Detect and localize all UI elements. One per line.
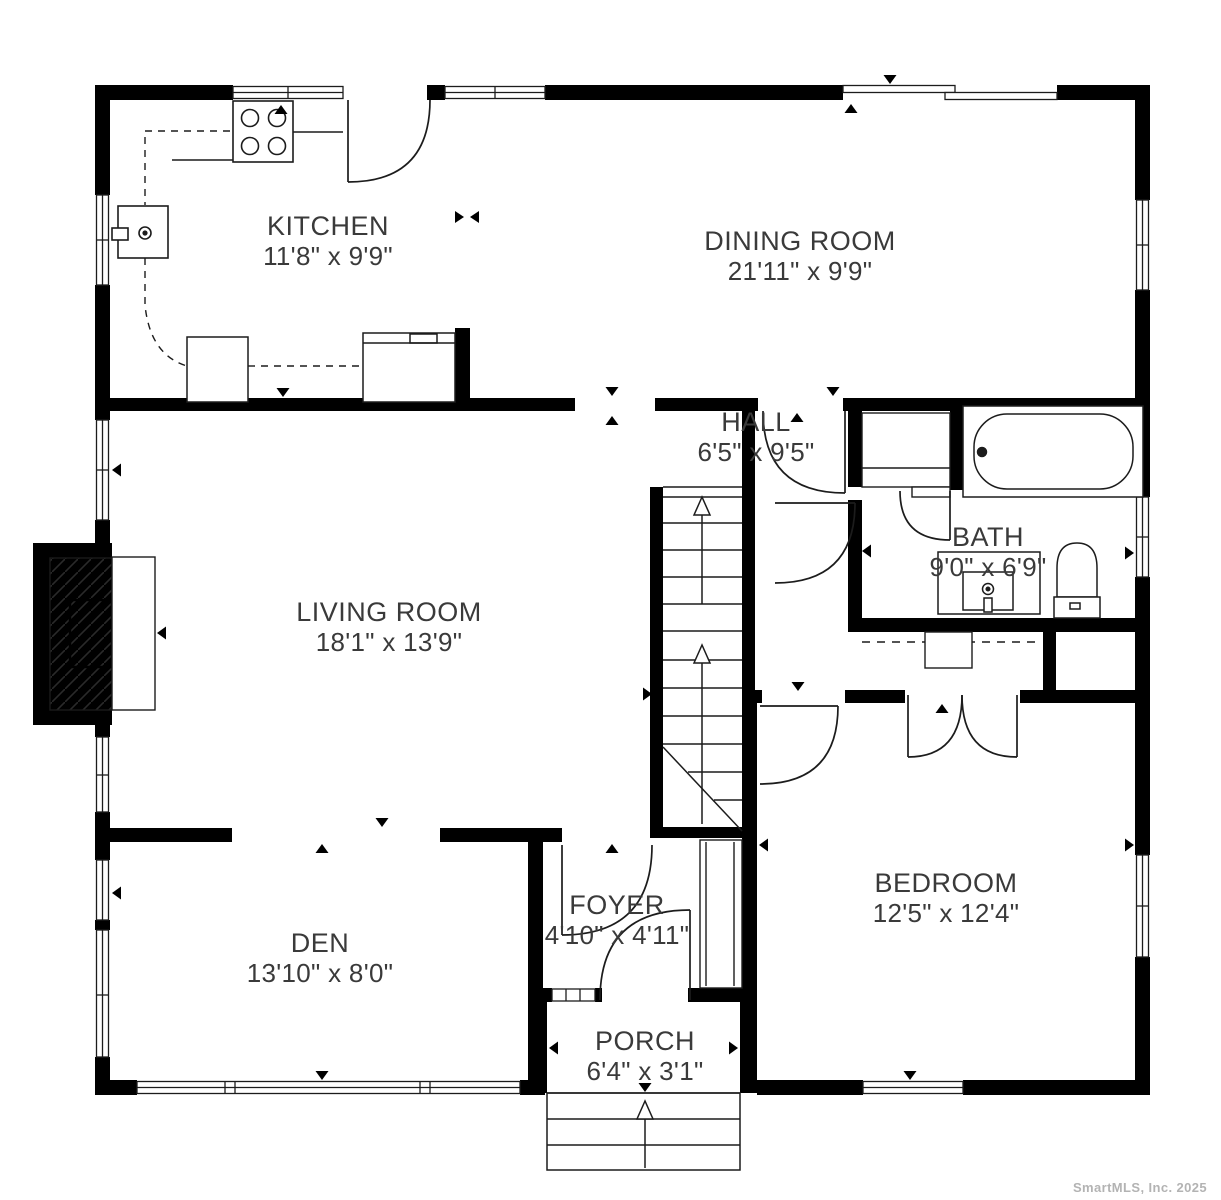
staircase-icon: [663, 487, 742, 831]
foyer-closet: [700, 840, 742, 988]
floor-plan-drawing: [0, 0, 1221, 1200]
room-dims: 21'11" x 9'9": [704, 257, 896, 286]
room-label-bath: BATH 9'0" x 6'9": [930, 522, 1047, 582]
room-label-porch: PORCH 6'4" x 3'1": [587, 1026, 704, 1086]
room-name: PORCH: [587, 1026, 704, 1057]
room-label-den: DEN 13'10" x 8'0": [247, 928, 394, 988]
room-name: LIVING ROOM: [296, 597, 482, 628]
room-label-living-room: LIVING ROOM 18'1" x 13'9": [296, 597, 482, 657]
kitchen-sink-icon: [112, 206, 168, 258]
linen-closet: [862, 413, 950, 497]
room-name: KITCHEN: [263, 211, 393, 242]
room-label-kitchen: KITCHEN 11'8" x 9'9": [263, 211, 393, 271]
bathtub-icon: [963, 406, 1143, 497]
room-label-dining-room: DINING ROOM 21'11" x 9'9": [704, 226, 896, 286]
room-name: BEDROOM: [873, 868, 1020, 899]
toilet-icon: [1054, 543, 1100, 618]
room-name: FOYER: [545, 890, 690, 921]
watermark: SmartMLS, Inc. 2025: [1073, 1180, 1207, 1195]
floor-plan: KITCHEN 11'8" x 9'9" DINING ROOM 21'11" …: [0, 0, 1221, 1200]
room-dims: 13'10" x 8'0": [247, 959, 394, 988]
room-label-hall: HALL 6'5" x 9'5": [698, 407, 815, 467]
room-dims: 6'5" x 9'5": [698, 438, 815, 467]
room-dims: 9'0" x 6'9": [930, 553, 1047, 582]
room-dims: 4'10" x 4'11": [545, 921, 690, 950]
room-name: HALL: [698, 407, 815, 438]
room-dims: 6'4" x 3'1": [587, 1057, 704, 1086]
bedroom-closet: [862, 632, 1040, 668]
room-name: DINING ROOM: [704, 226, 896, 257]
porch-steps-icon: [547, 1093, 740, 1170]
room-label-foyer: FOYER 4'10" x 4'11": [545, 890, 690, 950]
room-name: BATH: [930, 522, 1047, 553]
room-dims: 18'1" x 13'9": [296, 628, 482, 657]
fireplace-icon: [33, 543, 155, 725]
room-name: DEN: [247, 928, 394, 959]
room-dims: 11'8" x 9'9": [263, 242, 393, 271]
room-label-bedroom: BEDROOM 12'5" x 12'4": [873, 868, 1020, 928]
room-dims: 12'5" x 12'4": [873, 899, 1020, 928]
